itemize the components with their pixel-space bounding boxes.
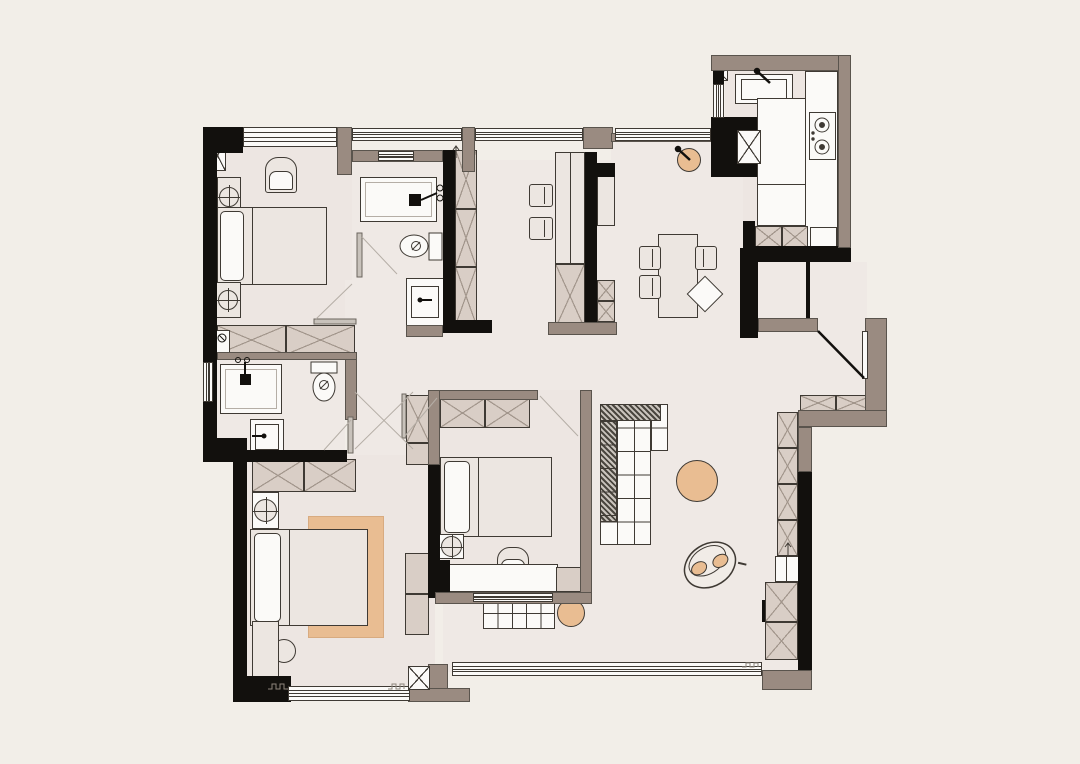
master-wardrobe-2 <box>286 325 355 355</box>
bedroom3-wardrobe-1 <box>252 459 304 492</box>
bedroom2-wardrobe-2 <box>485 398 530 428</box>
bedroom3-side-cabinet-1 <box>405 553 429 594</box>
window-kitchen <box>713 84 724 118</box>
study-chair-1[interactable] <box>529 184 553 207</box>
wall-bedroom3-corner-br <box>428 664 448 690</box>
bedroom2-desk-cabinet <box>556 567 582 592</box>
bedroom2-wardrobe-1 <box>440 398 485 428</box>
tv-cabinet-1 <box>777 412 798 448</box>
coffee-table <box>676 460 718 502</box>
bedroom2-lamp <box>441 536 462 557</box>
wall-bedroom2-right <box>580 390 592 600</box>
bedroom2-bed-line <box>478 458 479 536</box>
wall-top-left-corner <box>203 127 243 153</box>
wall-bedroom3-bottom-right <box>408 688 470 702</box>
bedroom2-corner-cabinet <box>406 395 430 443</box>
wall-guest-bath-right <box>345 352 357 420</box>
wall-right-lower <box>798 470 812 676</box>
window-master-bedroom <box>243 127 337 147</box>
window-top-1 <box>352 128 462 141</box>
sofa-back-top <box>600 404 661 421</box>
wall-kitchen-top <box>711 55 851 71</box>
master-lamp-1 <box>219 187 239 207</box>
kitchen-oven <box>810 227 837 247</box>
wall-kitchen-right <box>838 55 851 248</box>
bedroom3-lamp <box>254 499 277 522</box>
master-lamp-2 <box>218 290 238 310</box>
bedroom3-wardrobe-2 <box>304 459 356 492</box>
ac-unit <box>775 556 799 582</box>
wall-master-closet-base <box>217 352 357 360</box>
wall-pillar-1 <box>337 127 352 175</box>
guest-shower-tray <box>225 369 277 409</box>
wall-vestibule-south <box>758 318 818 332</box>
entry-door-leaf[interactable] <box>862 331 868 379</box>
wall-ensuite-right <box>443 150 455 332</box>
wall-divider-corner <box>431 560 450 594</box>
dining-table <box>658 234 698 318</box>
sofa-back-left <box>600 421 617 522</box>
wall-ensuite-south <box>443 320 492 333</box>
dining-chair-3[interactable] <box>695 246 717 270</box>
wall-bedroom2-top <box>428 390 538 400</box>
laundry-basin <box>677 148 701 172</box>
dining-chair-1[interactable] <box>639 246 661 270</box>
ensuite-sink-basin <box>411 286 439 318</box>
tv-cabinet-3 <box>777 484 798 520</box>
storage-cabinet-handle <box>762 600 765 622</box>
guest-sink-basin <box>255 424 279 450</box>
window-balcony-slider[interactable] <box>452 662 762 676</box>
entry-bench-1 <box>800 395 836 411</box>
floor-plan <box>0 0 1080 764</box>
kitchen-fridge-1 <box>755 226 782 248</box>
tv-cabinet-4 <box>777 520 798 556</box>
ensuite-shower-tray <box>365 182 432 217</box>
kitchen-fridge-2 <box>782 226 808 248</box>
corridor-cabinet-3 <box>455 267 477 325</box>
master-bed-pillow <box>220 211 244 281</box>
shoe-cabinet-panel <box>728 132 737 160</box>
wall-corridor-left-end <box>590 163 615 177</box>
kitchen-stove <box>809 112 836 160</box>
bedroom3-corner-cell <box>408 666 430 690</box>
entry-shoe-closet <box>737 130 761 164</box>
tv-cabinet-2 <box>777 448 798 484</box>
kitchen-sink <box>741 79 787 100</box>
bedroom3-pillow <box>254 533 281 622</box>
window-laundry <box>615 128 711 141</box>
corridor-cell-1 <box>597 280 615 301</box>
corridor-shelf <box>597 176 615 226</box>
bedroom2-pillow <box>444 461 470 533</box>
bedroom2-corner-cabinet-cell <box>406 443 430 465</box>
study-chair-2[interactable] <box>529 217 553 240</box>
bedroom3-bed-line <box>289 530 290 625</box>
wall-kitchen-bottom <box>745 246 851 262</box>
ac-unit-line <box>786 557 787 581</box>
wall-entry-door-frame <box>865 318 887 413</box>
storage-cabinet-2 <box>765 622 798 660</box>
window-ensuite <box>378 151 414 161</box>
window-bedroom3 <box>288 686 410 701</box>
bedroom3-side-cabinet-2 <box>405 594 429 635</box>
wall-ensuite-sink-base <box>406 325 443 337</box>
bedroom2-desk <box>448 564 558 592</box>
wall-bedroom3-left <box>233 455 247 700</box>
corridor-cell-2 <box>597 301 615 322</box>
window-guest-bath <box>203 362 213 402</box>
wall-vestibule-screen <box>806 252 810 320</box>
wall-right-upper <box>798 427 812 472</box>
bedroom3-side-shelf <box>252 621 279 683</box>
window-bedroom2-desk <box>473 593 553 602</box>
wall-balcony-corner <box>762 670 812 690</box>
wall-bedroom2-left-upper <box>428 390 440 465</box>
wall-guest-bath-bottom <box>217 450 347 462</box>
wall-block-corridor <box>583 127 613 149</box>
storage-cabinet-1 <box>765 582 798 622</box>
kitchen-lower-cabinet <box>757 184 806 226</box>
master-armchair <box>265 157 297 193</box>
study-cabinet <box>555 264 585 328</box>
master-bed-line <box>252 208 253 284</box>
corridor-cabinet-2 <box>455 209 477 267</box>
wall-bedroom3-bottom-corner <box>233 676 291 702</box>
study-desk-line <box>570 153 571 263</box>
wall-study-column <box>585 152 597 330</box>
wall-left-upper <box>203 127 217 457</box>
wall-entry-south <box>798 410 887 427</box>
window-top-2 <box>475 128 583 141</box>
dining-chair-2[interactable] <box>639 275 661 299</box>
wall-pillar-2 <box>462 127 475 172</box>
wall-vestibule-left <box>740 248 758 338</box>
wall-study-base <box>548 322 617 335</box>
